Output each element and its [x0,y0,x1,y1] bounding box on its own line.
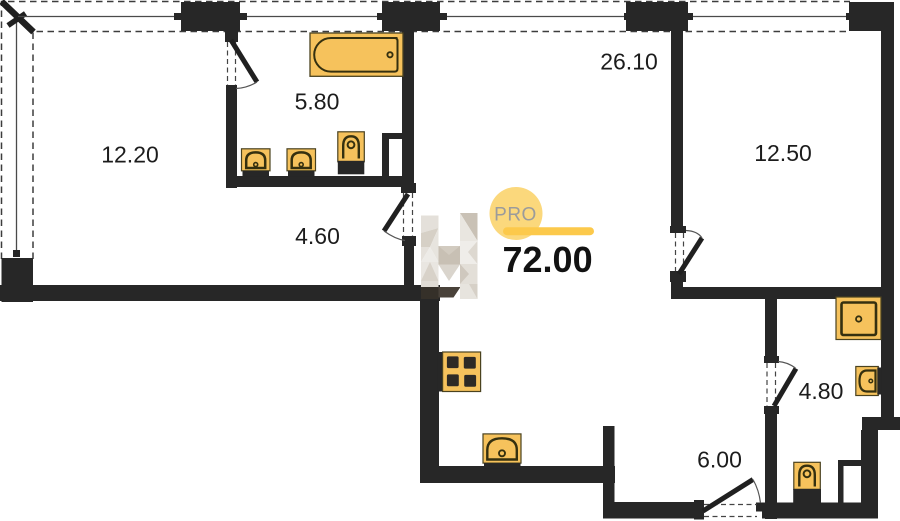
svg-text:PRO: PRO [494,205,537,226]
svg-text:12.50: 12.50 [754,140,812,166]
svg-text:72.00: 72.00 [503,239,593,280]
svg-text:4.60: 4.60 [295,223,340,249]
svg-text:26.10: 26.10 [600,49,658,75]
svg-text:5.80: 5.80 [295,89,340,115]
svg-text:6.00: 6.00 [697,447,742,473]
svg-text:12.20: 12.20 [101,142,159,168]
svg-text:4.80: 4.80 [799,378,844,404]
